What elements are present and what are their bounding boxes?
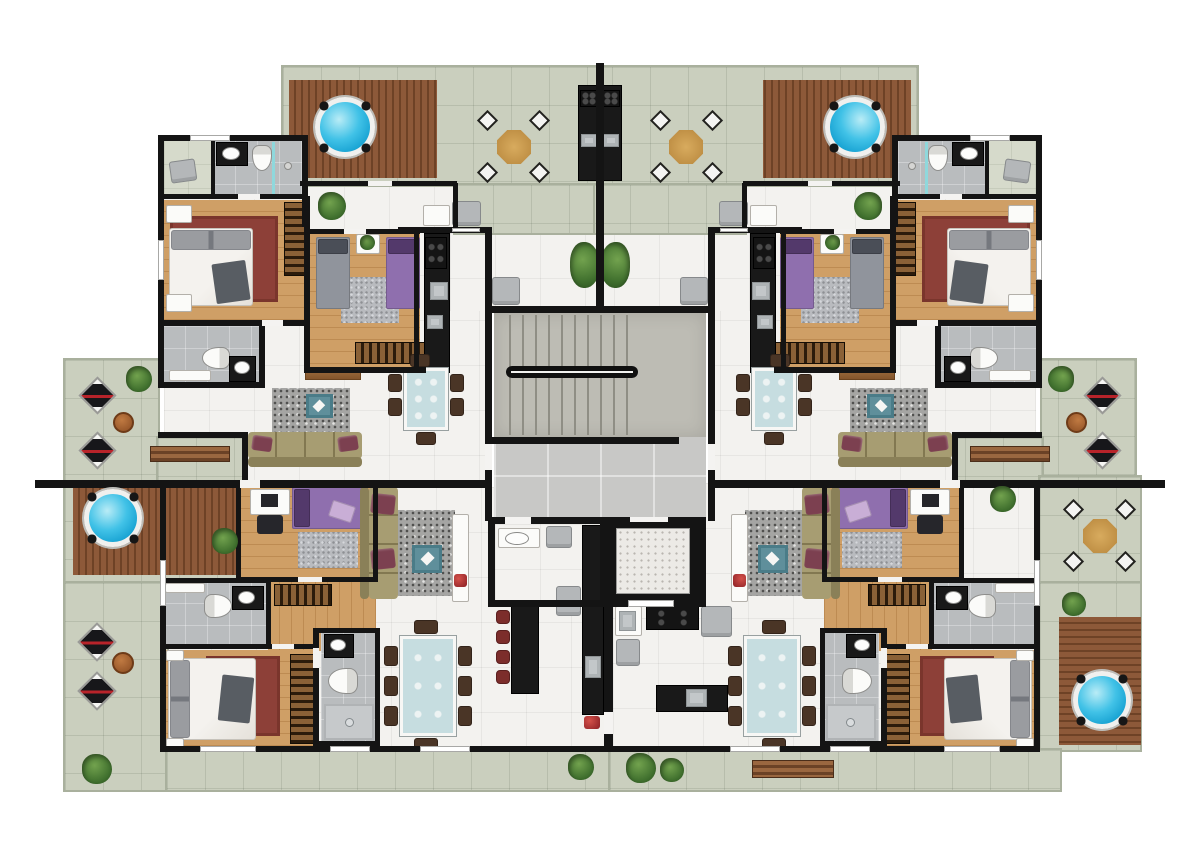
decor-red-bottom-mirror [733,574,746,587]
bbq-sink [581,134,597,147]
utility-heater [169,158,198,183]
wall-mirror [985,140,989,196]
sideboard-bottom-mirror [731,514,748,602]
wall [158,194,306,199]
wall-mirror [1034,480,1040,752]
terrace-plant-mid [126,366,152,392]
kitchen-sink-left [585,656,601,678]
chair [384,706,398,726]
sofa-top-back-mirror [838,457,952,467]
bbq-grill-mirror [602,90,620,107]
coffee-table-bottom-mirror [758,545,788,573]
window [452,228,480,232]
wardrobe-master-top-mirror [895,202,916,276]
bath-suite2-basin [330,639,346,651]
desk-laptop [261,494,278,507]
utility-heater-mirror [1003,158,1032,183]
terrace-plant-mid-mirror [1048,366,1074,392]
terrace-plant-top-mirror [854,192,882,220]
door-gap [240,480,260,488]
bed-master-top-pillows [171,230,251,250]
laundry-washer [546,526,572,548]
nightstand-a-mirror [1008,205,1034,223]
wall [160,480,166,752]
wall [242,434,248,484]
stove-top-unit-mirror [753,237,775,269]
sofa-bottom-back-mirror [831,487,840,599]
jacuzzi-top-mirror [825,97,885,157]
nightstand-a [166,205,192,223]
elevator-door [630,517,668,522]
door-gap-mirror [940,194,962,199]
page [0,0,1200,856]
bbq-sink-mirror [603,134,619,147]
bed-master-top-pillows-mirror [949,230,1029,250]
door-gap-mirror [940,480,960,488]
sink-top-unit-mirror [752,282,770,300]
wall [158,432,248,438]
chair [384,676,398,696]
window-mirror [1034,560,1040,606]
chair [388,398,402,416]
door-gap [604,712,613,734]
wardrobe-master-bottom [290,654,314,744]
planter-round [112,652,134,674]
chair [410,354,430,367]
door-gap-mirror [878,577,902,582]
jacuzzi-bottom-left [84,489,142,547]
fridge-right [701,606,732,637]
wall-mirror [959,483,964,581]
sofa-top-back [248,457,362,467]
wall-mirror [894,194,1042,199]
garden-bench-mid-mirror [970,446,1050,462]
bath-top-basin [222,147,240,160]
plant-bottom-a [568,754,594,780]
chair-mirror [802,706,816,726]
wall [158,320,308,326]
kitchen-sink-right [619,611,636,631]
door-gap [344,229,366,234]
hall-cabinet-mirror [680,277,708,305]
desk-chair-mirror [917,515,943,534]
wall-mirror [892,320,1042,326]
chair-mirror [764,432,784,445]
window [158,240,164,280]
sideboard-bottom [452,514,469,602]
wall-mirror [881,628,887,752]
chair-mirror [802,646,816,666]
lobby-floor [494,432,706,518]
chair-mirror [798,398,812,416]
bath-suite2-shower [324,704,374,740]
bath-suite-basin [234,361,250,374]
door-gap-mirror [708,444,715,470]
door-gap [298,577,322,582]
stove-top-unit [425,237,447,269]
bath-suite2-toilet [328,668,358,694]
rug-office [298,532,358,568]
chair [458,646,472,666]
window [420,746,470,752]
window-mirror [1036,240,1042,280]
chair-mirror [802,676,816,696]
vent [628,600,674,607]
chair-mirror [728,706,742,726]
bath-suite-shelf [169,370,211,381]
nightstand-c-mirror [1016,650,1034,661]
window [200,746,256,752]
door-gap-mirror [917,320,938,326]
wall [160,644,318,649]
dining-table-top [404,368,448,430]
stove-right [646,606,699,630]
wall [158,382,265,388]
bath-hall-shelf [165,583,205,593]
sofa-top-pillow-b-mirror [841,435,863,453]
shoe-rack-hall [274,584,332,606]
sink-top-unit [430,282,448,300]
bath-top-drain [284,162,292,170]
bed-twin-gray-pillow-mirror [852,239,882,254]
window-mirror [720,228,748,232]
door-gap [485,444,492,470]
plant-deck-left [212,528,238,554]
stair-handrail [506,366,638,378]
wall-mirror [952,432,1042,438]
dining-table-bottom-mirror [744,636,800,736]
wall [414,229,419,373]
desk-laptop-mirror [922,494,939,507]
nightstand-b [166,294,192,312]
bath-top-glass-mirror [925,142,928,194]
wall-mirror [890,196,896,373]
door-gap [313,648,319,668]
jacuzzi-top [315,97,375,157]
plant-br-b [1062,592,1086,616]
plant-bl-corner [82,754,112,784]
chair-mirror [736,398,750,416]
coffee-table-top [306,394,333,418]
wall-mirror [742,183,747,233]
wall-mirror [930,578,1040,583]
wall [158,135,308,141]
wall [373,483,378,581]
dining-table-top-mirror [752,368,796,430]
bath-hall-toilet-mirror [968,594,996,618]
dishwasher-top-unit-mirror [757,315,773,329]
wall-mirror [781,229,786,373]
bar-stool [496,630,510,644]
wall-mirror [952,434,958,484]
nightstand-b-mirror [1008,294,1034,312]
coffee-table-bottom [412,545,442,573]
wall [487,437,679,444]
wall-mirror [935,382,1042,388]
wall-mirror [820,628,825,746]
bath-hall-basin-mirror [945,591,962,604]
window-mirror [730,746,780,752]
wall-mirror [929,578,934,649]
side-table-round [113,412,134,433]
coffee-table-top-mirror [867,394,894,418]
wall [487,306,713,313]
bed-office-pillow-mirror [890,489,906,527]
twin-side-plant-mirror [825,235,840,250]
dishwasher-top-unit [427,315,443,329]
bar-stool [496,650,510,664]
dining-table-bottom [400,636,456,736]
bath-suite2-basin-mirror [854,639,870,651]
door-gap-mirror [881,648,887,668]
wall [318,628,380,633]
wall-mirror [713,480,1165,488]
bed-twin-purple-pillow-mirror [782,239,812,254]
wall [596,63,604,306]
garden-bench-br [752,760,834,778]
coffee-maker-left [584,716,600,729]
bed-master-bottom-throw-mirror [946,674,983,723]
floor-plan-canvas [0,0,1200,856]
door-gap [505,517,531,524]
chair [384,646,398,666]
sofa-bottom-back [360,487,369,599]
laundry-basin [505,532,529,545]
wall [259,320,265,388]
kitchen-cart-right [616,639,640,666]
bath-suite-shelf-mirror [989,370,1031,381]
washer-white [423,205,450,226]
chair [450,398,464,416]
chair-mirror [728,676,742,696]
chair [416,432,436,445]
wall [488,517,495,607]
wall [699,517,706,607]
twin-side-plant [360,235,375,250]
bath-hall-shelf-mirror [995,583,1035,593]
bath-suite2-shower-mirror [826,704,876,740]
nightstand-c [166,650,184,661]
chair [388,374,402,392]
window-mirror [944,746,1000,752]
wall [313,628,319,752]
wall [453,183,458,233]
window-mirror [970,135,1010,141]
wall [236,483,241,581]
chair-mirror [728,646,742,666]
chair-mirror [770,354,790,367]
hall-cabinet [492,277,520,305]
wall-mirror [892,135,1042,141]
wall-mirror [774,367,894,373]
door-gap [272,644,294,649]
bath-suite-basin-mirror [950,361,966,374]
bath-top-basin-mirror [960,147,978,160]
wall-mirror [820,628,882,633]
door-gap [238,194,260,199]
wall [485,227,492,521]
shoe-rack-hall-mirror [868,584,926,606]
sofa-top-pillow-b [337,435,359,453]
window [190,135,230,141]
window-mirror [830,746,870,752]
decor-red-bottom [454,574,467,587]
jacuzzi-bottom-right [1073,671,1131,729]
door-gap [368,181,392,186]
door-gap-mirror [906,644,928,649]
wall-mirror [708,227,715,521]
bed-master-top-throw [211,260,250,304]
wall [160,578,270,583]
kitchen-island-left [511,606,539,694]
door-gap-mirror [808,181,832,186]
side-table-round-mirror [1066,412,1087,433]
plant-bottom-c [660,758,684,782]
bath-hall-basin [238,591,255,604]
bar-stool [496,610,510,624]
plant-br-a [990,486,1016,512]
plant-bottom-b [626,753,656,783]
wardrobe-master-bottom-mirror [886,654,910,744]
wall [304,196,310,373]
terrace-plant-top [318,192,346,220]
chair [458,676,472,696]
wall-mirror [935,320,941,388]
window [330,746,370,752]
window [160,560,166,606]
bed-office-pillow [294,489,310,527]
elevator-floor [616,528,690,594]
wall [35,480,487,488]
terrace-plant-center-mirror [600,242,630,288]
wall-mirror [822,483,827,581]
chair [458,706,472,726]
chair-mirror [762,620,786,634]
bed-twin-gray-pillow [318,239,348,254]
wall [266,578,271,649]
bed-master-bottom-pillows-mirror [1010,660,1030,738]
sofa-top-pillow-a-mirror [927,435,949,453]
rug-office-mirror [842,532,902,568]
bed-master-bottom-throw [218,674,255,723]
garden-bench-mid [150,446,230,462]
chair [414,620,438,634]
chair-mirror [798,374,812,392]
wall [306,367,426,373]
wall [211,140,215,196]
door-gap [262,320,283,326]
bar-stool [496,670,510,684]
terrace-bottom-left [167,750,610,790]
bath-top-glass [272,142,275,194]
desk-chair [257,515,283,534]
sofa-top-pillow-a [251,435,273,453]
door-gap-mirror [834,229,856,234]
bath-top-drain-mirror [908,162,916,170]
kitchen-island-sink-right [686,689,707,707]
washer-white-mirror [750,205,777,226]
bed-master-bottom-pillows [170,660,190,738]
bath-suite-toilet [202,347,230,369]
wall [375,628,380,746]
chair-mirror [736,374,750,392]
bed-master-top-throw-mirror [949,260,988,304]
chair [450,374,464,392]
